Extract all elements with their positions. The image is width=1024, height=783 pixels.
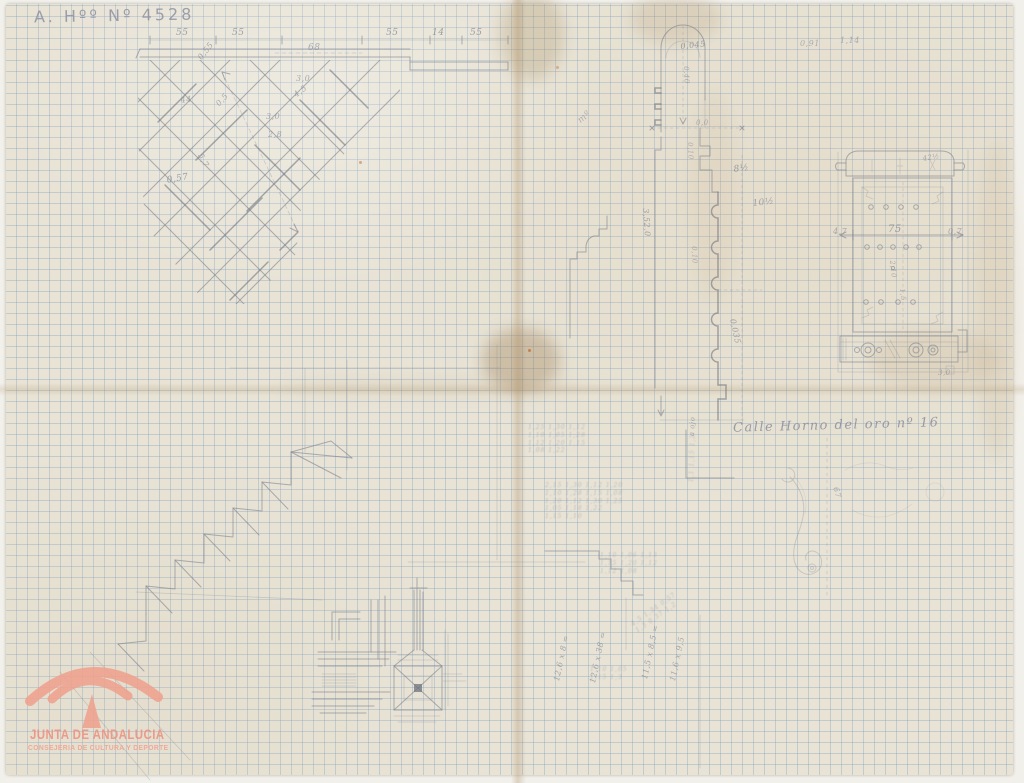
scroll-volute-sketch — [782, 463, 944, 575]
pencil-annotation: 0,91 — [800, 39, 820, 48]
pencil-annotation: 0,10 — [686, 142, 695, 160]
pencil-annotation: 14 — [432, 28, 444, 38]
pencil-annotation: 0,40 — [682, 66, 691, 84]
pencil-annotation: 55 — [232, 28, 244, 38]
illegible-pencil-scribble: 1,25 1,30 1,121,10 1,05 1,281,12 1,20 1,… — [528, 424, 586, 455]
scan-background: { "document": { "archive_number": "A. H\… — [0, 0, 1024, 783]
pencil-annotation: 1,5 — [898, 288, 907, 301]
logo-dept-text: CONSEJERIA DE CULTURA Y DEPORTE — [28, 743, 168, 752]
tile-pattern-sketch — [0, 36, 550, 320]
pencil-annotation: 3,0 — [266, 112, 280, 121]
illegible-pencil-scribble: 2,15 1,30 1,12 1,201,10 1,28 1,15 1,081,… — [545, 482, 623, 521]
pencil-annotation: 75 — [888, 224, 902, 235]
pencil-annotation: 44 — [180, 94, 192, 104]
pencil-annotation: 8½ — [733, 163, 750, 175]
pencil-annotation: 55 — [176, 28, 188, 38]
logo-org-text: JUNTA DE ANDALUCIA — [30, 726, 165, 742]
door-elevation-sketch — [836, 150, 969, 374]
molding-profile-sketch — [570, 216, 607, 338]
junta-logo: JUNTA DE ANDALUCIA CONSEJERIA DE CULTURA… — [22, 644, 182, 769]
corner-detail-sketch — [312, 578, 466, 722]
pencil-annotation: 3,0 — [938, 369, 951, 377]
archive-number: A. Hºº Nº 4528 — [34, 5, 195, 27]
illegible-pencil-scribble: 1,10 1,06 1,131,15 1,20 1,121,12 1,08 — [600, 552, 658, 575]
pencil-annotation: 55 — [386, 28, 398, 38]
pencil-annotation: 4,7 — [833, 227, 847, 236]
pencil-annotation: 55 — [470, 28, 482, 38]
pencil-annotation: 0,10 — [690, 246, 699, 264]
pencil-annotation: 2,10 — [888, 260, 898, 278]
pencil-annotation: 3,0 — [296, 74, 310, 83]
pencil-annotation: 0,0 — [696, 119, 709, 127]
pencil-annotation: 0,7 — [948, 227, 962, 236]
pencil-annotation: 3,52,0 — [641, 208, 652, 237]
illegible-pencil-scribble: 1,10 1,051,15 1,3 — [590, 666, 628, 682]
pencil-annotation: 1,14 — [840, 36, 860, 45]
pencil-annotation: 68 — [308, 43, 320, 53]
pencil-annotation: 2,8 — [268, 130, 282, 139]
